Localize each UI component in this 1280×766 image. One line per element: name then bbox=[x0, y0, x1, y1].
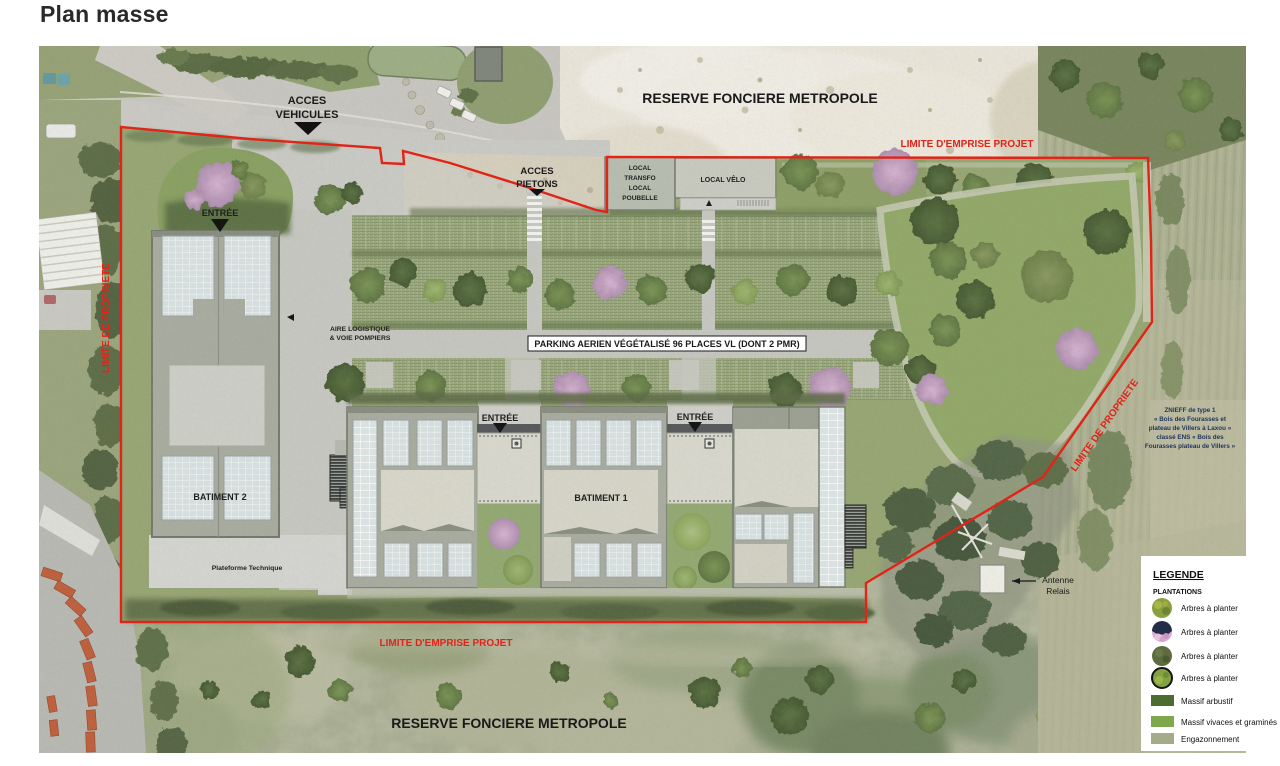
svg-text:LIMITE D'EMPRISE PROJET: LIMITE D'EMPRISE PROJET bbox=[380, 638, 513, 649]
svg-text:plateau de Villers à Laxou »: plateau de Villers à Laxou » bbox=[1149, 425, 1232, 432]
svg-text:RESERVE FONCIERE METROPOLE: RESERVE FONCIERE METROPOLE bbox=[642, 90, 877, 106]
svg-text:ACCES: ACCES bbox=[288, 95, 327, 107]
svg-text:Arbres à planter: Arbres à planter bbox=[1181, 674, 1238, 683]
svg-text:LEGENDE: LEGENDE bbox=[1153, 569, 1204, 581]
svg-text:LIMITE D'EMPRISE PROJET: LIMITE D'EMPRISE PROJET bbox=[901, 139, 1034, 150]
svg-text:Arbres à planter: Arbres à planter bbox=[1181, 628, 1238, 637]
svg-text:« Bois des Fourasses et: « Bois des Fourasses et bbox=[1154, 416, 1227, 423]
svg-text:Arbres à planter: Arbres à planter bbox=[1181, 652, 1238, 661]
svg-text:PARKING AERIEN VÉGÉTALISÉ 96 P: PARKING AERIEN VÉGÉTALISÉ 96 PLACES VL (… bbox=[534, 339, 799, 349]
svg-text:Arbres à planter: Arbres à planter bbox=[1181, 604, 1238, 613]
svg-text:Massif arbustif: Massif arbustif bbox=[1181, 697, 1233, 706]
svg-text:LIMITE DE PROPRIETE: LIMITE DE PROPRIETE bbox=[101, 263, 112, 373]
svg-text:PIETONS: PIETONS bbox=[516, 179, 558, 190]
svg-text:Antenne: Antenne bbox=[1042, 575, 1074, 585]
svg-text:Fourasses plateau de Villers »: Fourasses plateau de Villers » bbox=[1145, 443, 1236, 450]
svg-text:ZNIEFF de type 1: ZNIEFF de type 1 bbox=[1164, 407, 1216, 414]
svg-text:Massif vivaces et graminés: Massif vivaces et graminés bbox=[1181, 718, 1277, 727]
svg-text:RESERVE FONCIERE METROPOLE: RESERVE FONCIERE METROPOLE bbox=[391, 715, 626, 731]
svg-text:VEHICULES: VEHICULES bbox=[276, 109, 339, 121]
svg-text:Engazonnement: Engazonnement bbox=[1181, 735, 1240, 744]
svg-text:ACCES: ACCES bbox=[520, 166, 553, 177]
svg-text:Relais: Relais bbox=[1046, 586, 1070, 596]
svg-text:PLANTATIONS: PLANTATIONS bbox=[1153, 589, 1202, 596]
svg-text:classé ENS « Bois des: classé ENS « Bois des bbox=[1156, 434, 1224, 441]
svg-text:Plan masse: Plan masse bbox=[40, 1, 169, 27]
